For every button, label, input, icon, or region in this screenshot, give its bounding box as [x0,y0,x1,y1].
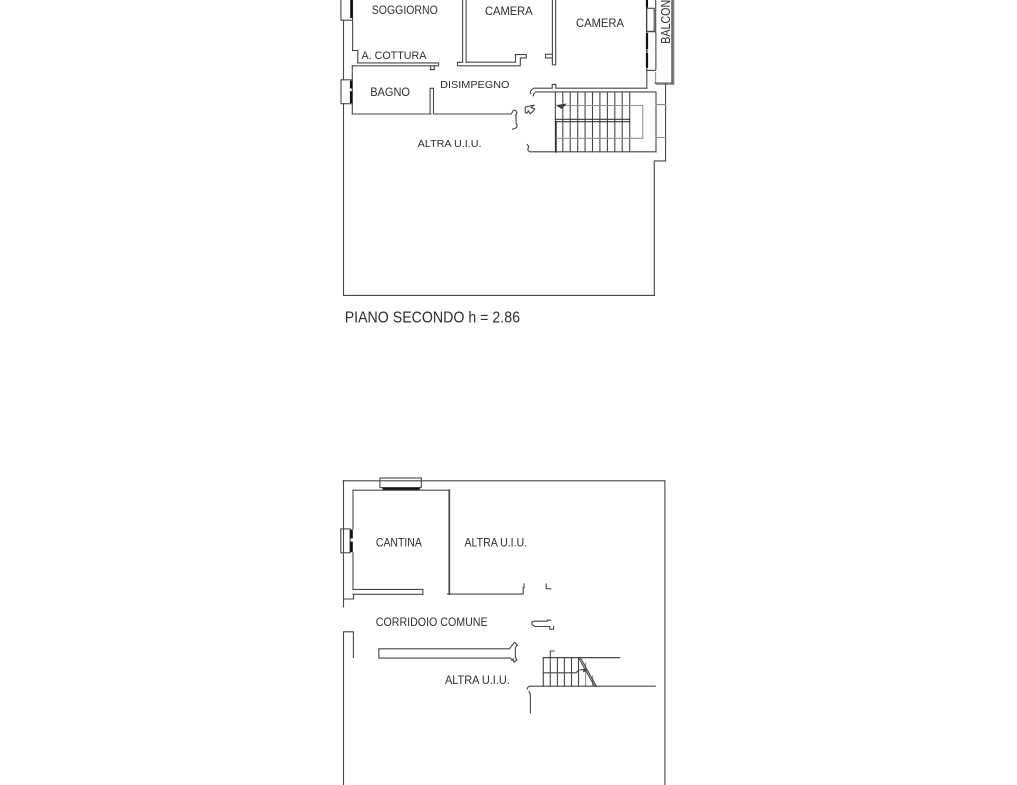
svg-text:A. COTTURA: A. COTTURA [362,50,428,62]
svg-text:CORRIDOIO COMUNE: CORRIDOIO COMUNE [376,615,488,629]
svg-text:PIANO SECONDO h = 2.86: PIANO SECONDO h = 2.86 [345,310,520,327]
svg-text:BAGNO: BAGNO [370,85,410,99]
svg-text:BALCONE: BALCONE [659,0,673,44]
svg-text:ALTRA U.I.U.: ALTRA U.I.U. [465,536,528,550]
svg-text:DISIMPEGNO: DISIMPEGNO [440,80,509,91]
svg-text:CAMERA: CAMERA [576,16,625,30]
svg-text:CAMERA: CAMERA [485,4,533,18]
svg-text:CANTINA: CANTINA [376,536,423,550]
svg-text:ALTRA U.I.U.: ALTRA U.I.U. [445,673,510,687]
svg-text:ALTRA U.I.U.: ALTRA U.I.U. [418,139,482,150]
svg-text:SOGGIORNO: SOGGIORNO [372,3,438,17]
